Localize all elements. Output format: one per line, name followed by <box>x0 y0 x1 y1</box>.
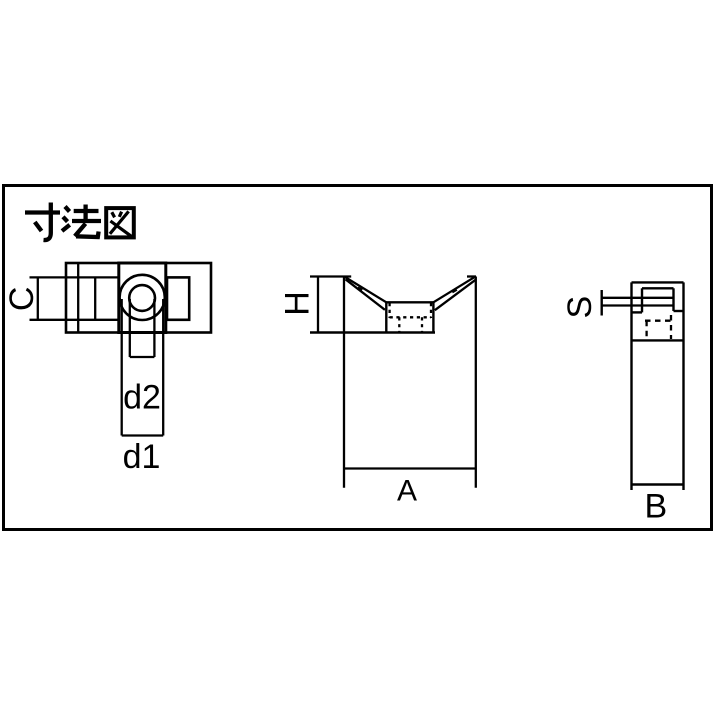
svg-text:H: H <box>279 291 317 316</box>
svg-text:d1: d1 <box>123 438 161 476</box>
svg-text:B: B <box>644 488 667 526</box>
svg-text:A: A <box>397 475 417 508</box>
svg-text:C: C <box>3 287 41 312</box>
svg-text:S: S <box>561 296 599 319</box>
svg-text:d2: d2 <box>123 379 161 417</box>
